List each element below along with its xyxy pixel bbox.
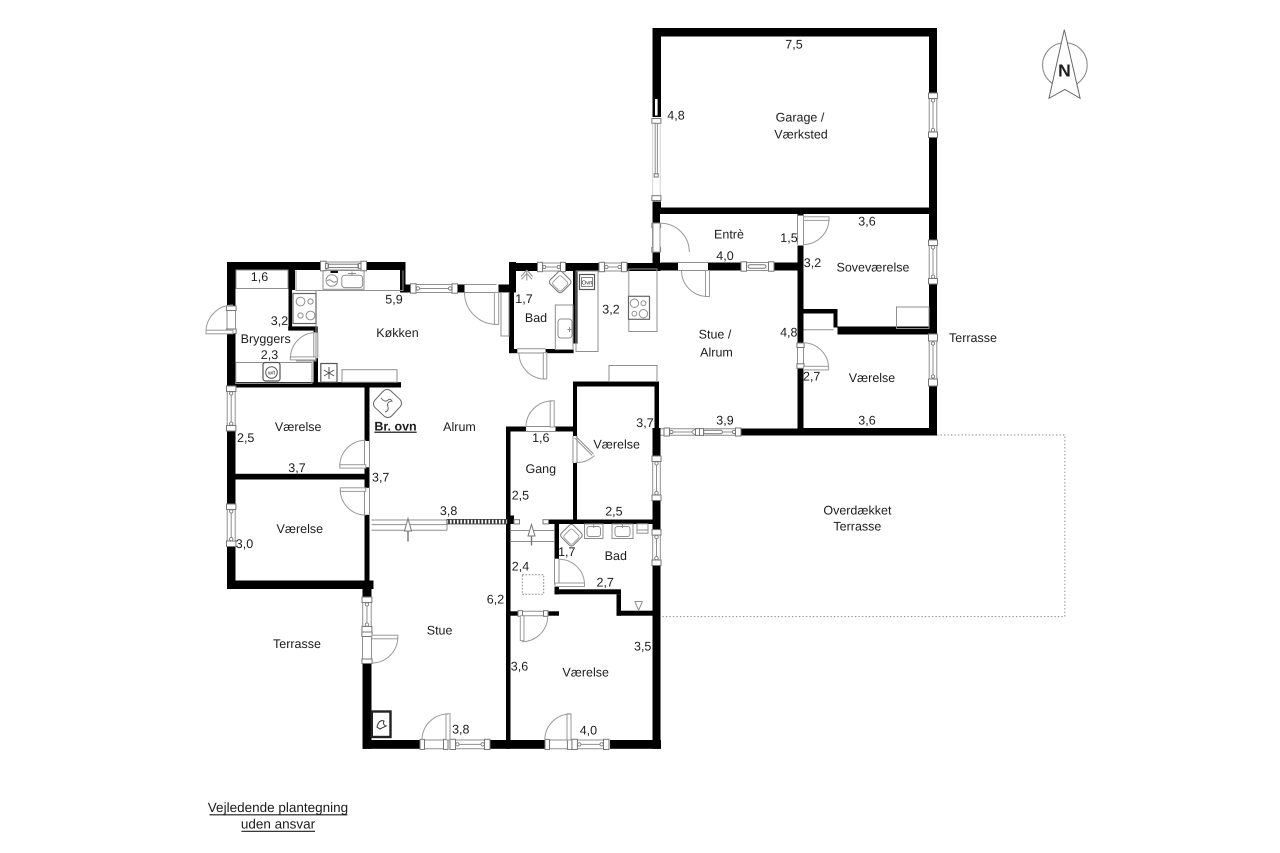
svg-text:3,8: 3,8: [440, 504, 457, 518]
svg-text:1,6: 1,6: [532, 431, 549, 445]
svg-text:3,9: 3,9: [716, 414, 733, 428]
svg-text:2,7: 2,7: [803, 369, 820, 383]
svg-text:Alrum: Alrum: [443, 420, 476, 434]
svg-text:Værelse: Værelse: [275, 420, 322, 434]
svg-text:3,0: 3,0: [236, 537, 253, 551]
svg-text:Bryggers: Bryggers: [241, 332, 291, 346]
svg-text:2,5: 2,5: [605, 505, 622, 519]
svg-text:Stue: Stue: [427, 624, 453, 638]
svg-text:1,7: 1,7: [515, 292, 532, 306]
svg-text:Værelse: Værelse: [562, 665, 609, 679]
svg-text:2,5: 2,5: [237, 431, 254, 445]
svg-text:Garage /: Garage /: [776, 111, 825, 125]
svg-text:2,4: 2,4: [512, 559, 529, 573]
svg-text:5,9: 5,9: [385, 293, 402, 307]
svg-text:3,6: 3,6: [858, 215, 875, 229]
svg-text:2,7: 2,7: [597, 576, 614, 590]
svg-text:Br. ovn: Br. ovn: [374, 420, 416, 434]
svg-text:3,5: 3,5: [634, 639, 651, 653]
svg-text:1,7: 1,7: [558, 545, 575, 559]
svg-text:Soveværelse: Soveværelse: [837, 261, 910, 275]
svg-text:1,6: 1,6: [251, 270, 268, 284]
svg-text:2,5: 2,5: [512, 488, 529, 502]
svg-text:4,0: 4,0: [580, 724, 597, 738]
svg-text:3,7: 3,7: [636, 416, 653, 430]
svg-text:4,8: 4,8: [780, 326, 797, 340]
svg-text:1,5: 1,5: [780, 231, 797, 245]
svg-text:Entrè: Entrè: [714, 228, 744, 242]
svg-text:Terrasse: Terrasse: [949, 331, 997, 345]
svg-text:Værelse: Værelse: [277, 522, 324, 536]
svg-text:Værelse: Værelse: [849, 371, 896, 385]
svg-text:3,2: 3,2: [804, 256, 821, 270]
svg-text:Alrum: Alrum: [700, 346, 733, 360]
svg-text:3,7: 3,7: [372, 470, 389, 484]
svg-text:3,8: 3,8: [452, 722, 469, 736]
svg-text:3,7: 3,7: [288, 461, 305, 475]
svg-text:Terrasse: Terrasse: [833, 520, 881, 534]
svg-text:3,2: 3,2: [602, 303, 619, 317]
svg-text:N: N: [1058, 61, 1071, 81]
svg-text:Bad: Bad: [525, 311, 547, 325]
svg-text:Køkken: Køkken: [376, 326, 418, 340]
svg-text:Overdækket: Overdækket: [823, 504, 892, 518]
svg-text:Værelse: Værelse: [593, 438, 640, 452]
svg-text:4,0: 4,0: [716, 249, 733, 263]
svg-text:6,2: 6,2: [487, 592, 504, 606]
svg-text:Gang: Gang: [526, 462, 557, 476]
svg-text:Ovn: Ovn: [581, 280, 592, 287]
svg-text:Bad: Bad: [605, 549, 627, 563]
svg-text:uden ansvar: uden ansvar: [241, 817, 316, 832]
svg-text:Stue /: Stue /: [699, 328, 732, 342]
svg-text:Terrasse: Terrasse: [273, 637, 321, 651]
svg-text:4,8: 4,8: [667, 109, 684, 123]
svg-text:3,6: 3,6: [511, 660, 528, 674]
svg-text:w/t: w/t: [267, 371, 276, 377]
svg-text:3,6: 3,6: [858, 414, 875, 428]
svg-text:7,5: 7,5: [785, 38, 802, 52]
svg-text:3,2: 3,2: [271, 314, 288, 328]
svg-text:2,3: 2,3: [261, 348, 278, 362]
svg-text:Værksted: Værksted: [774, 128, 828, 142]
svg-text:Vejledende plantegning: Vejledende plantegning: [208, 800, 348, 815]
